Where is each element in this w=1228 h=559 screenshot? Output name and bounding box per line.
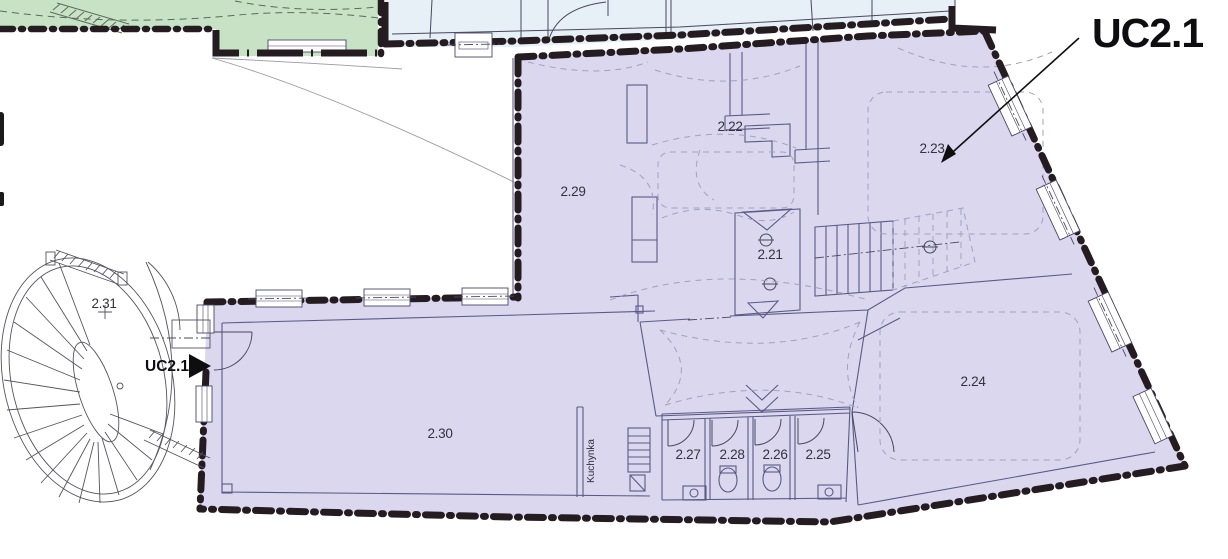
spiral-staircase: [0, 239, 210, 520]
blue-window: [447, 33, 500, 57]
room-label-229: 2.29: [560, 184, 585, 199]
window: [248, 290, 310, 307]
floor-plan-canvas: 2.21 2.22 2.23 2.24 2.25 2.26 2.27 2.28 …: [0, 0, 1228, 559]
window: [197, 305, 214, 333]
window: [356, 289, 418, 306]
entry-marker-label: UC2.1: [145, 358, 189, 375]
window: [196, 386, 212, 422]
site-boundary-curve: [212, 58, 516, 183]
floor-plan-svg: 2.21 2.22 2.23 2.24 2.25 2.26 2.27 2.28 …: [0, 0, 1228, 559]
room-label-231: 2.31: [91, 296, 116, 311]
room-label-222: 2.22: [717, 119, 742, 134]
room-label-227: 2.27: [675, 447, 700, 462]
window: [454, 288, 516, 305]
room-label-225: 2.25: [805, 447, 830, 462]
unit-annotation-label: UC2.1: [1092, 10, 1203, 56]
cropped-label-fragment: [0, 112, 4, 206]
room-label-226: 2.26: [762, 447, 787, 462]
kitchen-label: Kuchynka: [586, 439, 597, 483]
room-label-221: 2.21: [757, 247, 782, 262]
room-label-228: 2.28: [719, 447, 744, 462]
room-label-224: 2.24: [960, 374, 986, 389]
adjacent-building-green: [0, 0, 381, 56]
stair-steps: [4, 263, 163, 503]
unit-entry-marker: UC2.1: [145, 354, 211, 378]
room-label-230: 2.30: [427, 426, 452, 441]
unit-uc21-area: [150, 31, 1185, 522]
room-label-223: 2.23: [919, 141, 944, 156]
